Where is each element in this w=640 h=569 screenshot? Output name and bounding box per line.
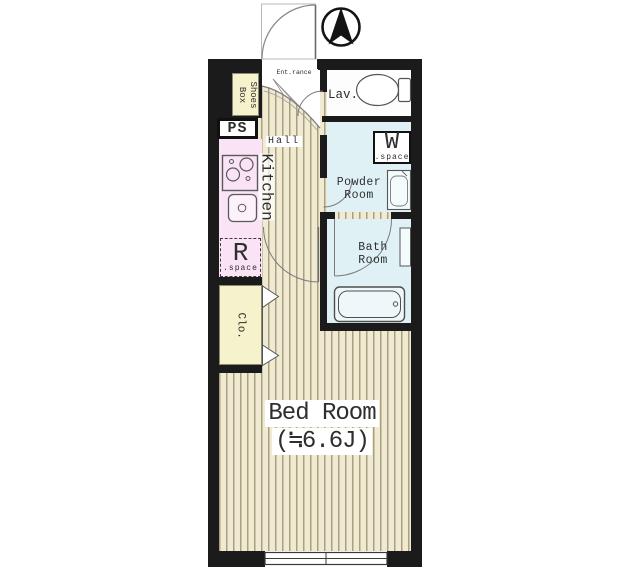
bed-room-label: Bed Room: [256, 401, 388, 427]
bedroom-door-swing: [264, 227, 319, 282]
window: [265, 553, 387, 565]
refrigerator-space-box: R .space: [220, 238, 261, 277]
bath-room-label: Bath Room: [342, 242, 404, 267]
entrance-step: [262, 70, 320, 130]
closet-folding-doors: [263, 285, 279, 366]
shoes-box-label: Shoes Box: [236, 75, 258, 115]
bathtub-icon: [335, 287, 405, 322]
north-arrow-icon: [323, 8, 360, 46]
kitchen-sink-icon: [229, 195, 257, 222]
bed-room-size: (≒6.6J): [256, 429, 388, 455]
hall-label: Hall: [266, 136, 302, 147]
fixtures-layer: [0, 0, 640, 569]
powder-room-label: Powder Room: [327, 177, 391, 202]
pipe-space-box: PS: [217, 118, 258, 139]
toilet-icon: [357, 75, 411, 106]
entrance-label: Ent.rance: [270, 69, 318, 76]
washer-space-box: W .space: [373, 131, 411, 164]
stove-icon: [223, 156, 258, 191]
kitchen-label: Kitchen: [259, 154, 275, 221]
lavatory-label: Lav.: [328, 89, 358, 103]
closet-label: Clo.: [234, 313, 247, 339]
entrance-door-swing: [262, 4, 316, 59]
floor-plan: Ent.rance Shoes Box PS Hall Kitchen Lav.…: [0, 0, 640, 569]
